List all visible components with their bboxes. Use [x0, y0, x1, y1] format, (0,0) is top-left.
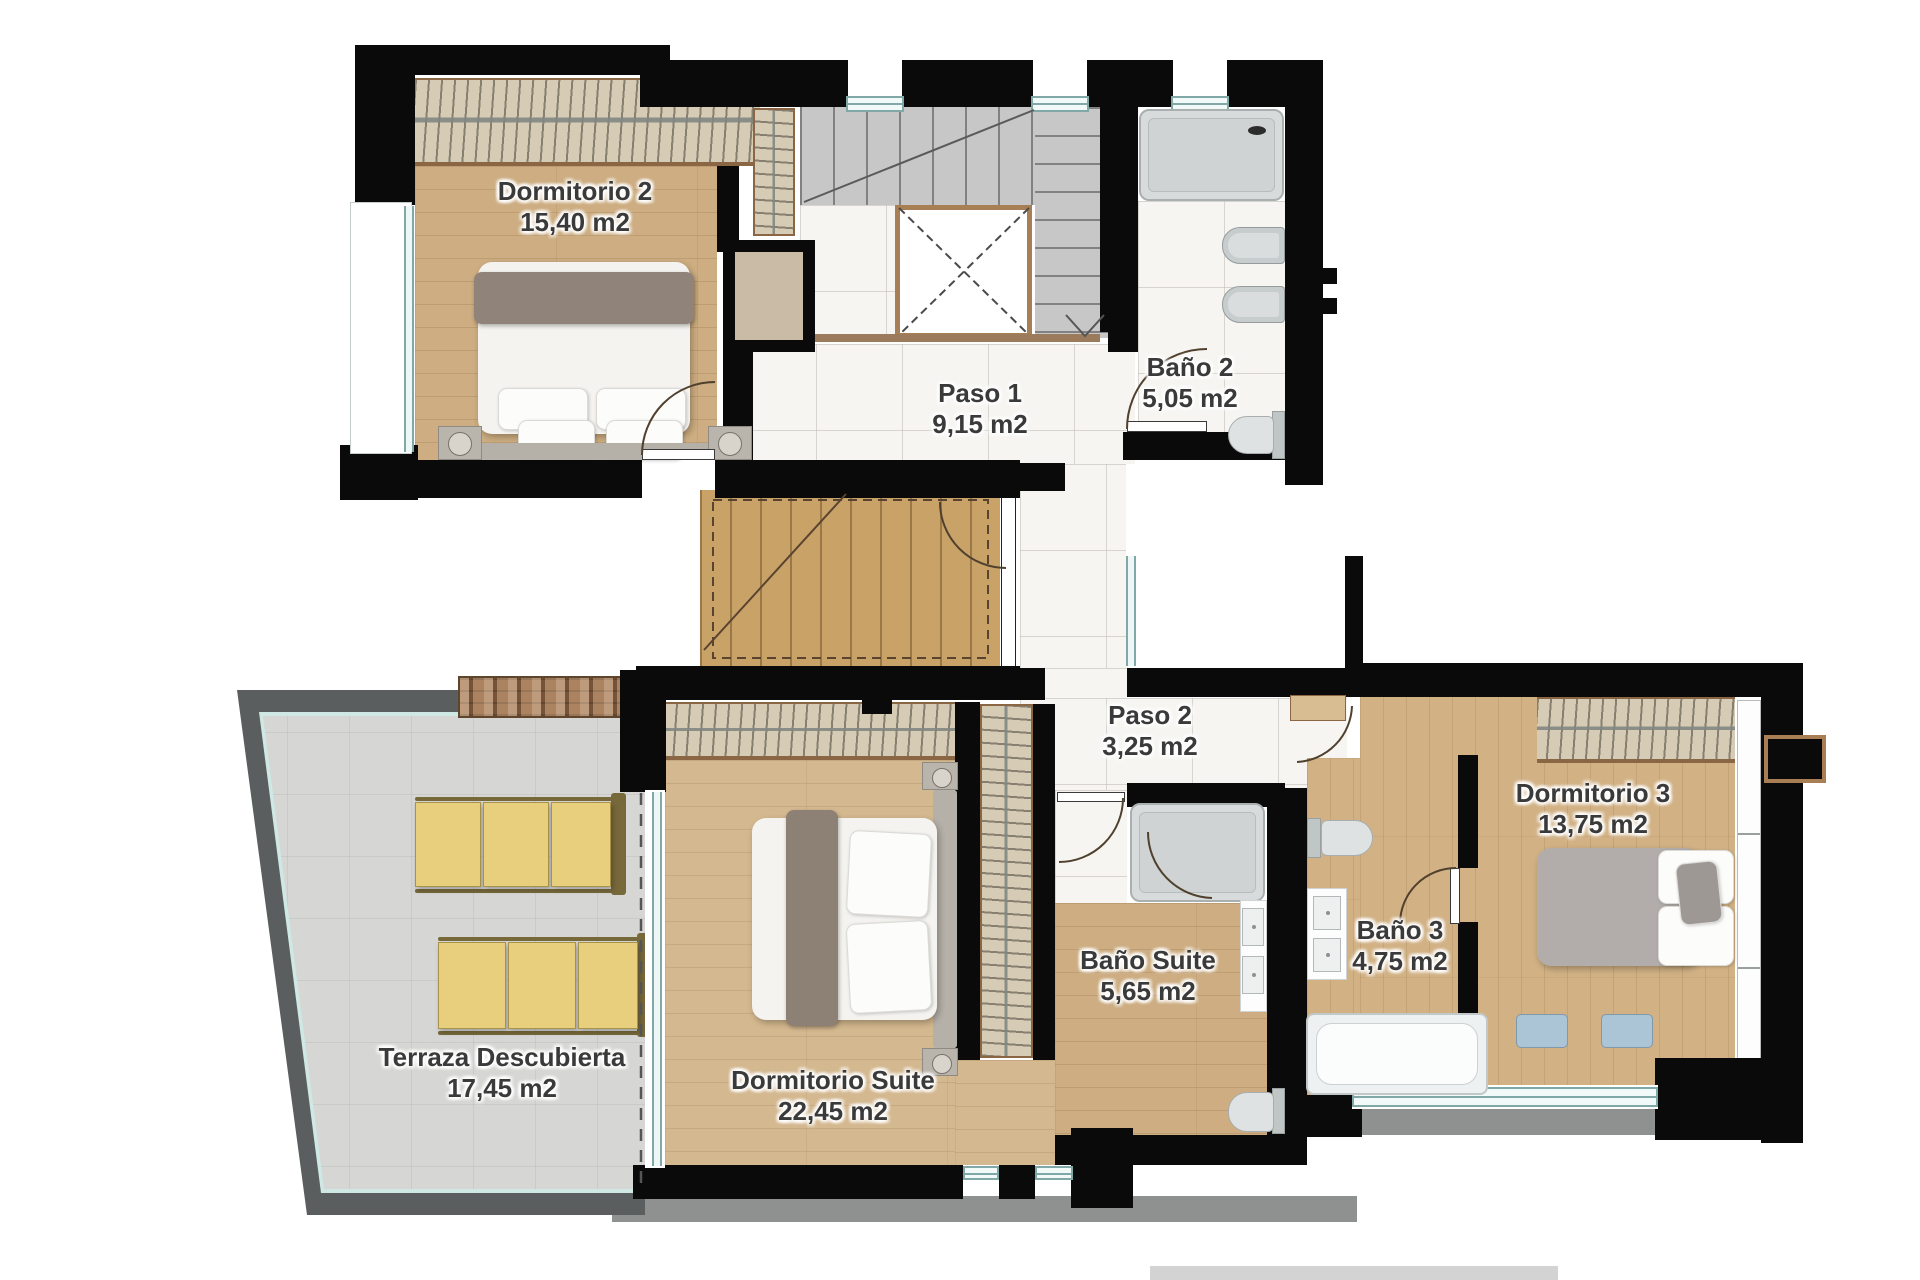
lounger-cushion	[483, 802, 549, 887]
lamp	[448, 432, 472, 456]
room-name: Baño Suite	[1028, 945, 1268, 976]
bano-suite-vestibule-floor	[1055, 790, 1127, 907]
lounger-cushion	[508, 942, 576, 1029]
dormitorio-suite-closet	[663, 702, 957, 760]
room-name: Paso 2	[1050, 700, 1250, 731]
wall	[1323, 298, 1337, 314]
suite-bottom-window-2	[1035, 1166, 1073, 1180]
room-label-dormitorio-suite: Dormitorio Suite 22,45 m2	[683, 1065, 983, 1126]
upper-stairs-edge	[800, 334, 1100, 342]
bano-3-toilet-tank	[1307, 818, 1321, 858]
shower-drain	[1248, 126, 1266, 135]
wall	[1323, 268, 1337, 284]
room-label-terraza: Terraza Descubierta 17,45 m2	[322, 1042, 682, 1103]
lounger-cushion	[438, 942, 506, 1029]
dormitorio-suite-terrace-window	[652, 792, 662, 1166]
room-label-paso-2: Paso 2 3,25 m2	[1050, 700, 1250, 761]
door-leaf-bano-suite	[1057, 792, 1125, 802]
wall	[1127, 668, 1347, 697]
bano-2-toilet-bowl	[1228, 416, 1274, 454]
room-area: 3,25 m2	[1050, 731, 1250, 762]
room-name: Dormitorio 3	[1443, 778, 1743, 809]
wall	[1017, 463, 1065, 491]
wall	[1100, 107, 1138, 332]
dormitorio-3-parapet-band	[1350, 1109, 1658, 1135]
watermark-bar	[1150, 1266, 1558, 1280]
door-leaf-bano-2	[1127, 421, 1207, 432]
door-leaf-dormitorio-2	[642, 449, 715, 460]
window-top-2	[1031, 96, 1089, 112]
room-area: 5,05 m2	[1090, 383, 1290, 414]
terrace-stone-wall	[458, 676, 628, 718]
wall	[415, 460, 642, 498]
room-name: Dormitorio 2	[425, 176, 725, 207]
bano-2-sink-2	[1222, 286, 1285, 323]
stair-void-shaft	[895, 205, 1032, 338]
dormitorio-3-wardrobe	[1737, 700, 1761, 1105]
stool	[1516, 1014, 1568, 1048]
lounger-cushion	[578, 942, 638, 1029]
room-area: 17,45 m2	[322, 1073, 682, 1104]
room-area: 9,15 m2	[880, 409, 1080, 440]
room-area: 22,45 m2	[683, 1096, 983, 1127]
floor-plan-canvas: Dormitorio 2 15,40 m2 Paso 1 9,15 m2 Bañ…	[0, 0, 1920, 1280]
wall	[1018, 668, 1045, 700]
lounger-rail	[415, 797, 615, 801]
lounger-headbar	[611, 793, 626, 895]
wall	[1347, 663, 1761, 697]
bano-3-bathtub	[1306, 1013, 1488, 1095]
dormitorio-2-balcony	[350, 202, 412, 454]
room-area: 5,65 m2	[1028, 976, 1268, 1007]
wall	[1071, 1128, 1133, 1208]
lounger-rail	[438, 937, 640, 941]
lamp	[932, 768, 952, 788]
suite-bed-throw	[786, 810, 838, 1026]
lounger-rail	[438, 1031, 640, 1035]
bed-cushion	[1675, 860, 1723, 926]
stool	[1601, 1014, 1653, 1048]
lamp	[718, 432, 742, 456]
bano-suite-basin-1	[1242, 908, 1264, 946]
room-label-bano-suite: Baño Suite 5,65 m2	[1028, 945, 1268, 1006]
wall	[1655, 1058, 1803, 1140]
wall	[355, 45, 415, 205]
dormitorio-2-bed-throw	[474, 272, 694, 324]
corridor-glass-panel	[1126, 556, 1136, 666]
wall	[999, 1165, 1035, 1199]
stairs-handrail	[1001, 492, 1016, 668]
bano-suite-shower-tray	[1130, 803, 1265, 902]
wall	[955, 702, 980, 1060]
suite-walkin-wardrobe	[980, 704, 1033, 1058]
bed-pillow	[846, 830, 932, 918]
wall	[1108, 330, 1138, 352]
bano-2-shower-tray	[1139, 109, 1284, 201]
middle-wood-stairs	[700, 490, 1000, 666]
window-top-1	[846, 96, 904, 112]
room-name: Terraza Descubierta	[322, 1042, 682, 1073]
wall	[633, 1165, 963, 1199]
bed-pillow	[846, 920, 933, 1014]
lounger-rail	[415, 889, 615, 893]
room-label-bano-2: Baño 2 5,05 m2	[1090, 352, 1290, 413]
lounger-cushion	[551, 802, 611, 887]
wall	[636, 666, 1020, 700]
upper-stairs-treads	[800, 107, 1035, 205]
wall	[862, 698, 892, 714]
room-name: Dormitorio Suite	[683, 1065, 983, 1096]
room-label-bano-3: Baño 3 4,75 m2	[1300, 915, 1500, 976]
room-name: Baño 3	[1300, 915, 1500, 946]
room-name: Baño 2	[1090, 352, 1290, 383]
wall	[640, 45, 670, 107]
hall-wardrobe	[753, 108, 795, 236]
room-area: 15,40 m2	[425, 207, 725, 238]
suite-bottom-window-1	[963, 1166, 999, 1180]
room-area: 4,75 m2	[1300, 946, 1500, 977]
room-name: Paso 1	[880, 378, 1080, 409]
wall	[620, 670, 666, 792]
dormitorio-3-closet	[1537, 697, 1735, 763]
room-label-dormitorio-2: Dormitorio 2 15,40 m2	[425, 176, 725, 237]
wall	[715, 460, 1020, 498]
bano-3-toilet-bowl	[1321, 820, 1373, 856]
storage-niche	[735, 252, 803, 340]
bano-2-sink-1	[1222, 227, 1285, 264]
hall-corridor-gap-floor	[1043, 668, 1127, 700]
wall	[1285, 60, 1323, 485]
dormitorio-2-window	[404, 206, 414, 452]
door-sill-dormitorio-3	[1290, 695, 1346, 721]
room-area: 13,75 m2	[1443, 809, 1743, 840]
lounger-cushion	[415, 802, 481, 887]
room-label-paso-1: Paso 1 9,15 m2	[880, 378, 1080, 439]
suite-parapet-band	[612, 1196, 1357, 1222]
bano-suite-toilet-bowl	[1228, 1092, 1274, 1132]
hall-corridor-floor	[1020, 464, 1126, 668]
wall-protrusion	[1764, 735, 1826, 783]
room-label-dormitorio-3: Dormitorio 3 13,75 m2	[1443, 778, 1743, 839]
